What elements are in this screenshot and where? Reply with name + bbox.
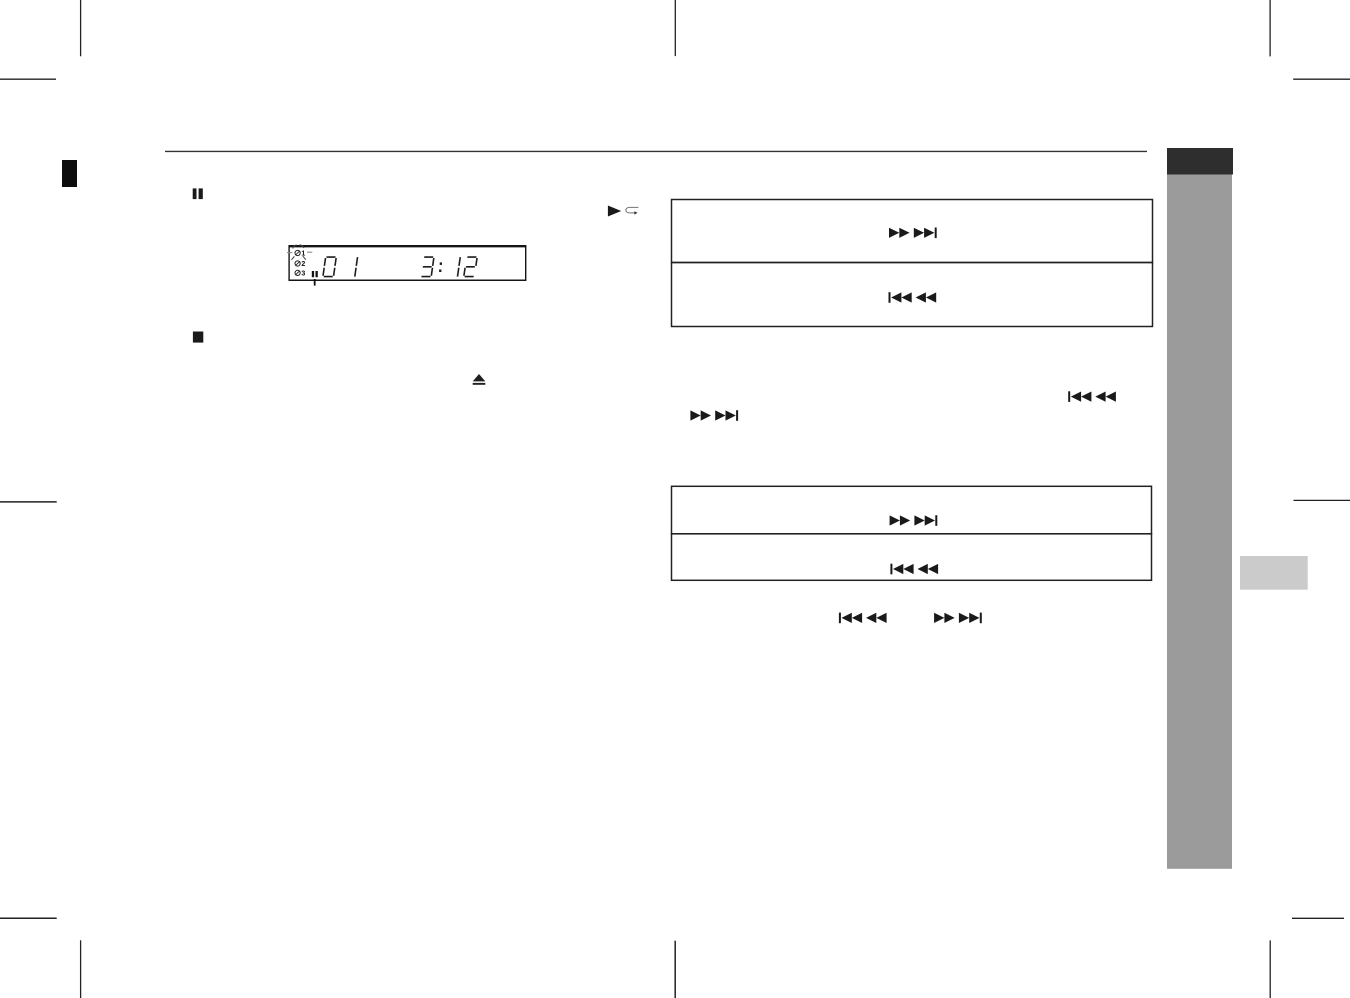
svg-text:2: 2 — [301, 261, 305, 268]
svg-text:3: 3 — [301, 271, 305, 278]
